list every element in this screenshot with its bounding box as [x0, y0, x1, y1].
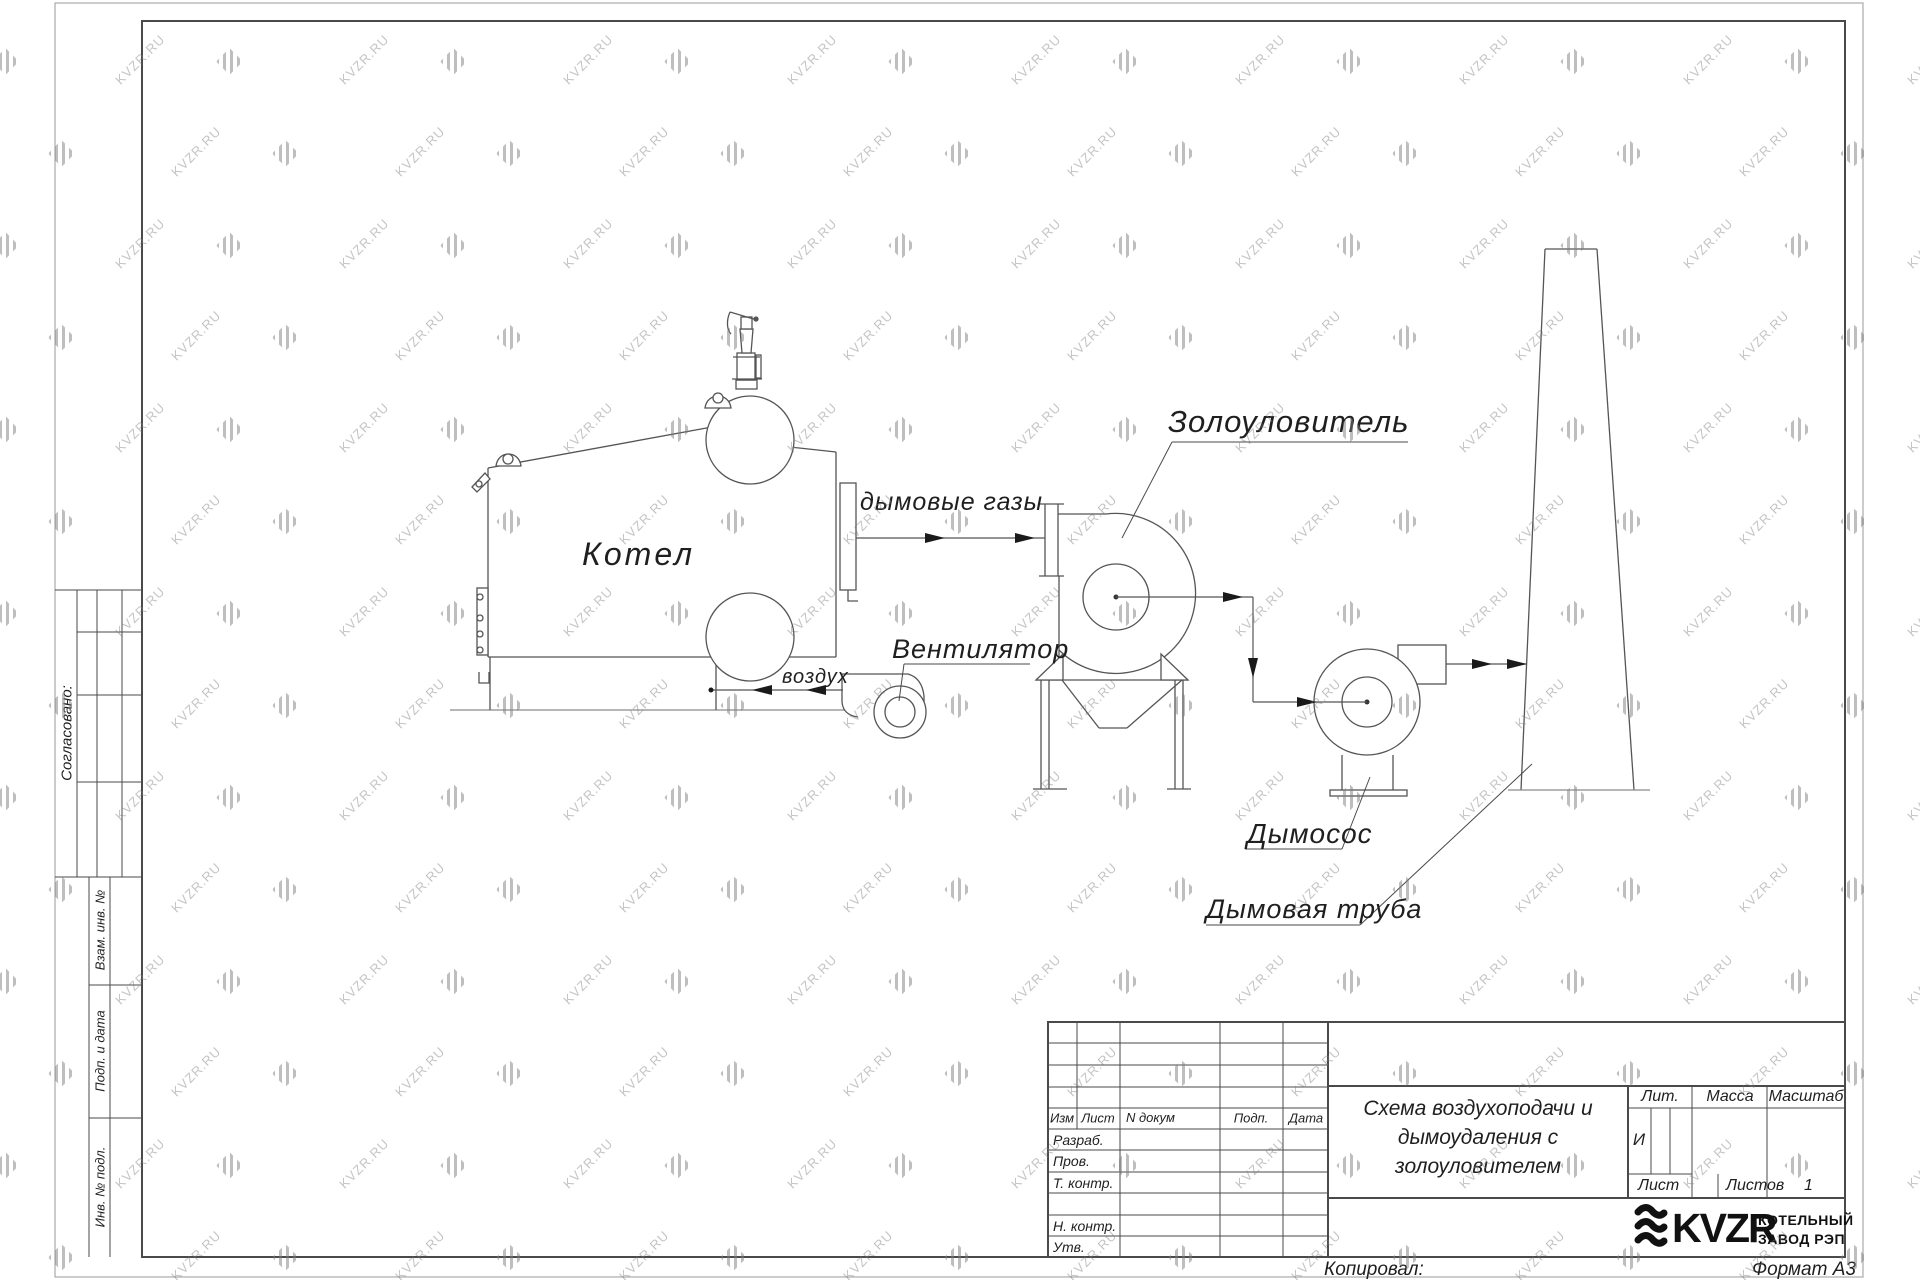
kvzr-logo: KVZR [1634, 1203, 1776, 1254]
air-label: воздух [782, 666, 849, 689]
tb-list-label: Лист [1638, 1177, 1679, 1195]
tb-header-list: Лист [1081, 1111, 1114, 1126]
chimney-drawing [1508, 249, 1650, 790]
margin-label-vzam-inv: Взам. инв. № [93, 890, 108, 970]
tb-row-utv: Утв. [1053, 1239, 1085, 1255]
company-name-line1: КОТЕЛЬНЫЙ [1758, 1212, 1854, 1228]
tb-massa-label: Масса [1706, 1088, 1753, 1106]
tb-listov-value: 1 [1804, 1177, 1813, 1195]
tb-header-podp: Подп. [1234, 1111, 1269, 1126]
tb-header-data: Дата [1289, 1111, 1323, 1126]
margin-label-podp-i-data: Подп. и дата [93, 1010, 108, 1091]
tb-row-razrab: Разраб. [1053, 1132, 1104, 1148]
kopiroval-label: Копировал: [1324, 1259, 1424, 1280]
drawing-title: Схема воздухоподачи и дымоудаления с зол… [1330, 1094, 1626, 1181]
flue-gases-label: дымовые газы [860, 488, 1043, 517]
margin-label-inv-podl: Инв. № подл. [93, 1147, 108, 1228]
tb-row-t-kontr: Т. контр. [1053, 1175, 1113, 1191]
company-name-line2: ЗАВОД РЭП [1758, 1231, 1845, 1247]
format-label: Формат А3 [1752, 1259, 1856, 1280]
tb-lit-value: И [1633, 1130, 1645, 1150]
safety-valve [727, 312, 762, 389]
tb-header-izm: Изм [1050, 1111, 1074, 1126]
chimney-label: Дымовая труба [1206, 894, 1422, 925]
tb-lit-label: Лит. [1641, 1088, 1678, 1106]
tb-row-n-kontr: Н. контр. [1053, 1218, 1116, 1234]
kvzr-logo-icon [1634, 1203, 1668, 1254]
tb-masshtab-label: Масштаб [1769, 1088, 1844, 1106]
margin-label-soglasovano: Согласовано: [59, 685, 76, 781]
boiler-drawing [450, 312, 858, 710]
ash-collector-label: Золоуловитель [1168, 404, 1409, 440]
boiler-label: Котел [582, 536, 695, 573]
tb-row-prov: Пров. [1053, 1153, 1090, 1169]
smoke-exhauster-drawing [1314, 645, 1446, 796]
tb-listov-label: Листов [1726, 1177, 1784, 1195]
tb-header-n-dokum: N докум [1126, 1110, 1175, 1125]
smoke-exhauster-label: Дымосос [1247, 818, 1373, 850]
fan-label: Вентилятор [892, 634, 1069, 665]
fan-drawing [842, 674, 926, 738]
drawing-sheet: Котел дымовые газы Вентилятор воздух Зол… [0, 0, 1920, 1280]
